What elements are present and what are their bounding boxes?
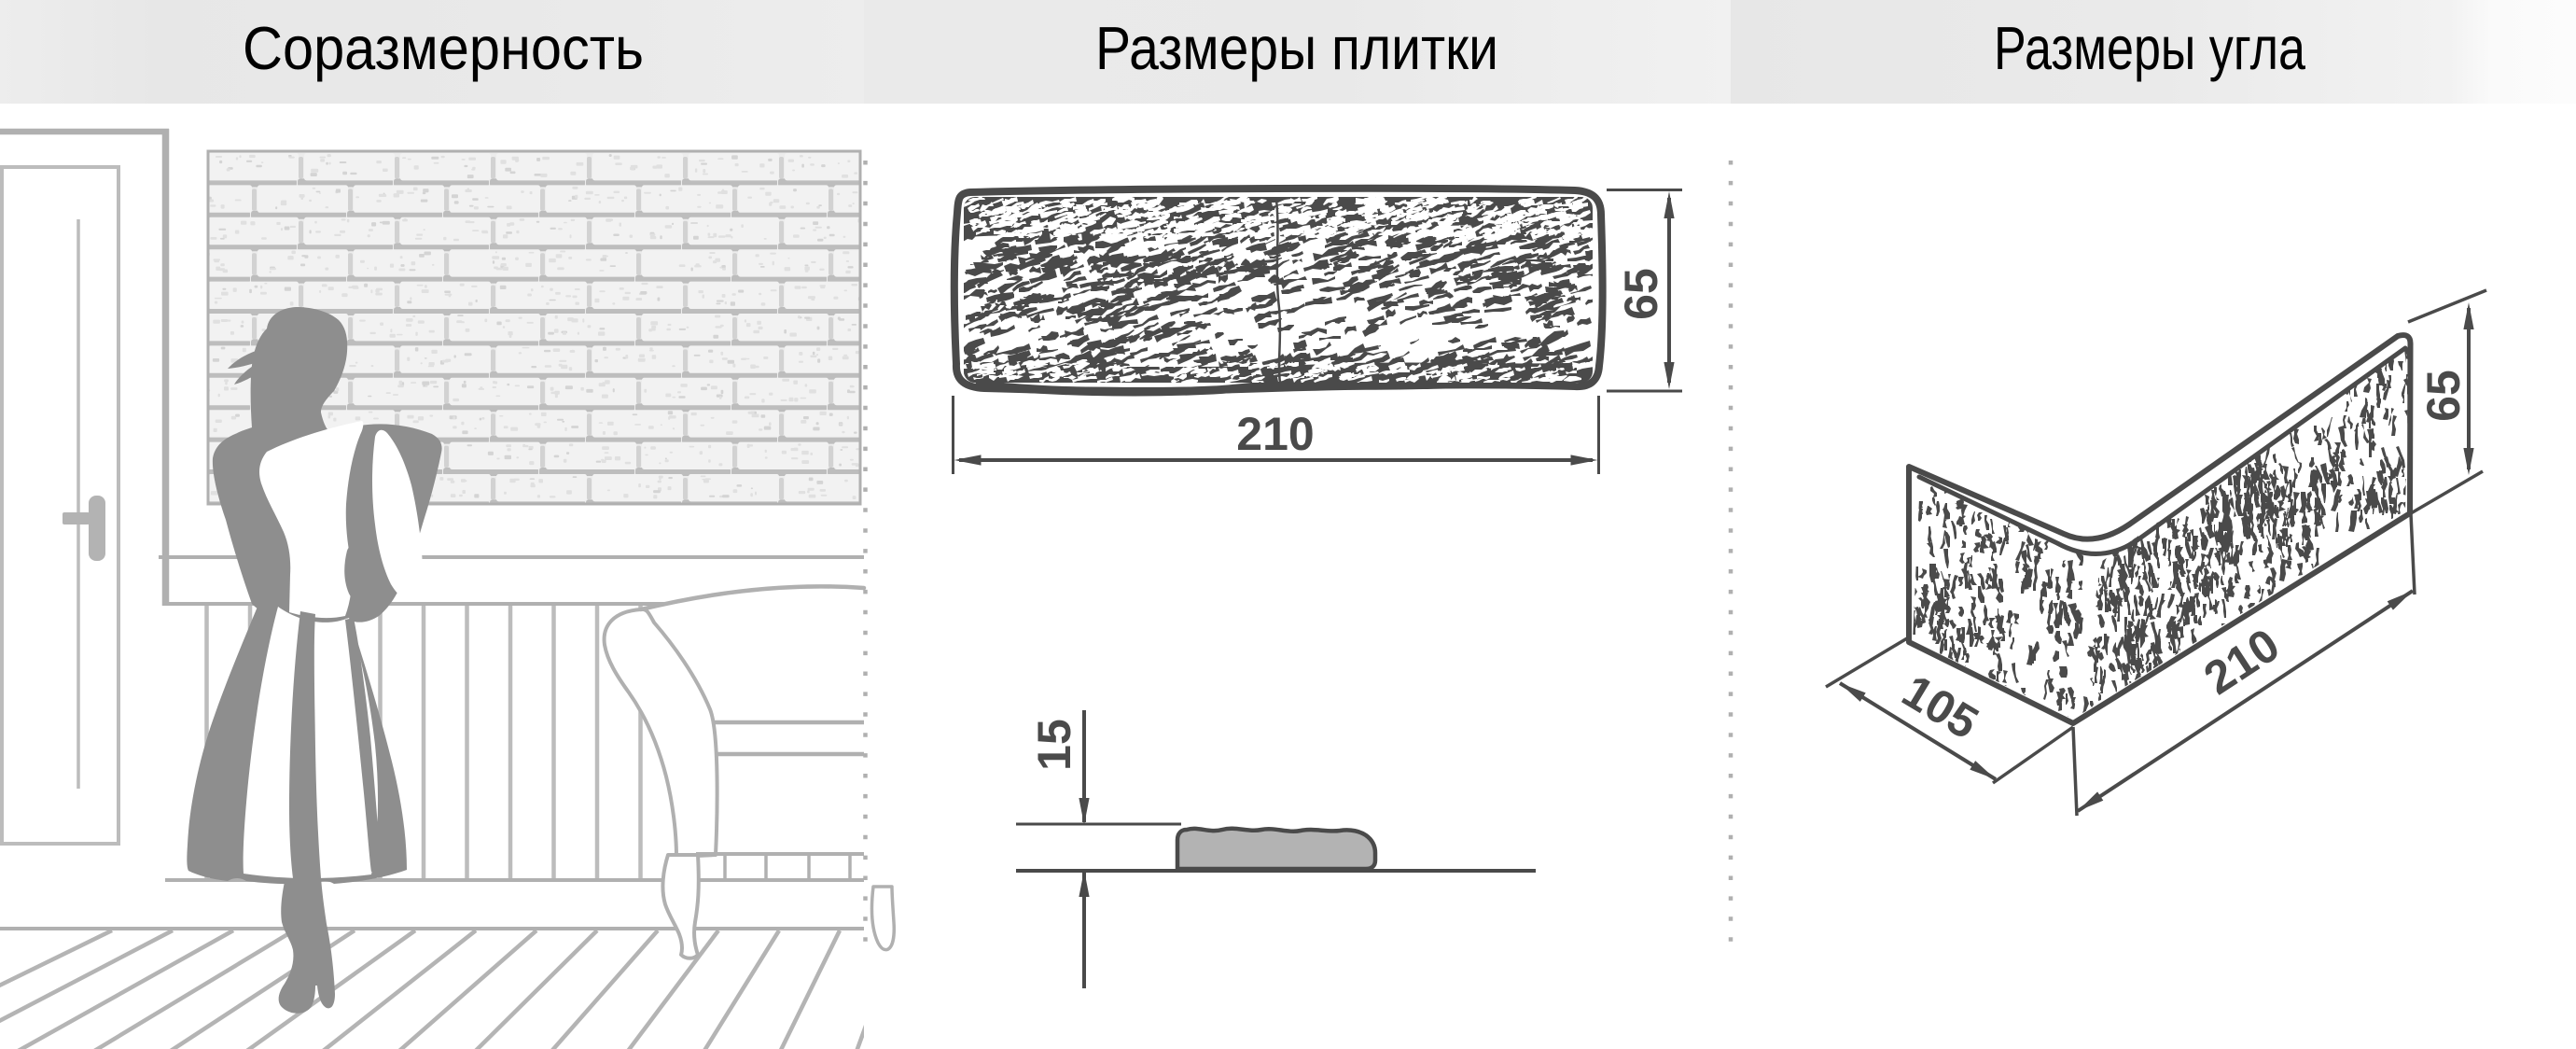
svg-text:65: 65 — [2417, 370, 2470, 422]
svg-text:210: 210 — [1236, 408, 1314, 460]
svg-text:Размеры плитки: Размеры плитки — [1095, 15, 1498, 82]
svg-text:Соразмерность: Соразмерность — [243, 15, 644, 82]
svg-text:105: 105 — [1894, 664, 1987, 749]
svg-text:65: 65 — [1615, 268, 1667, 320]
svg-text:Размеры угла: Размеры угла — [1994, 15, 2305, 82]
svg-text:15: 15 — [1028, 719, 1080, 771]
